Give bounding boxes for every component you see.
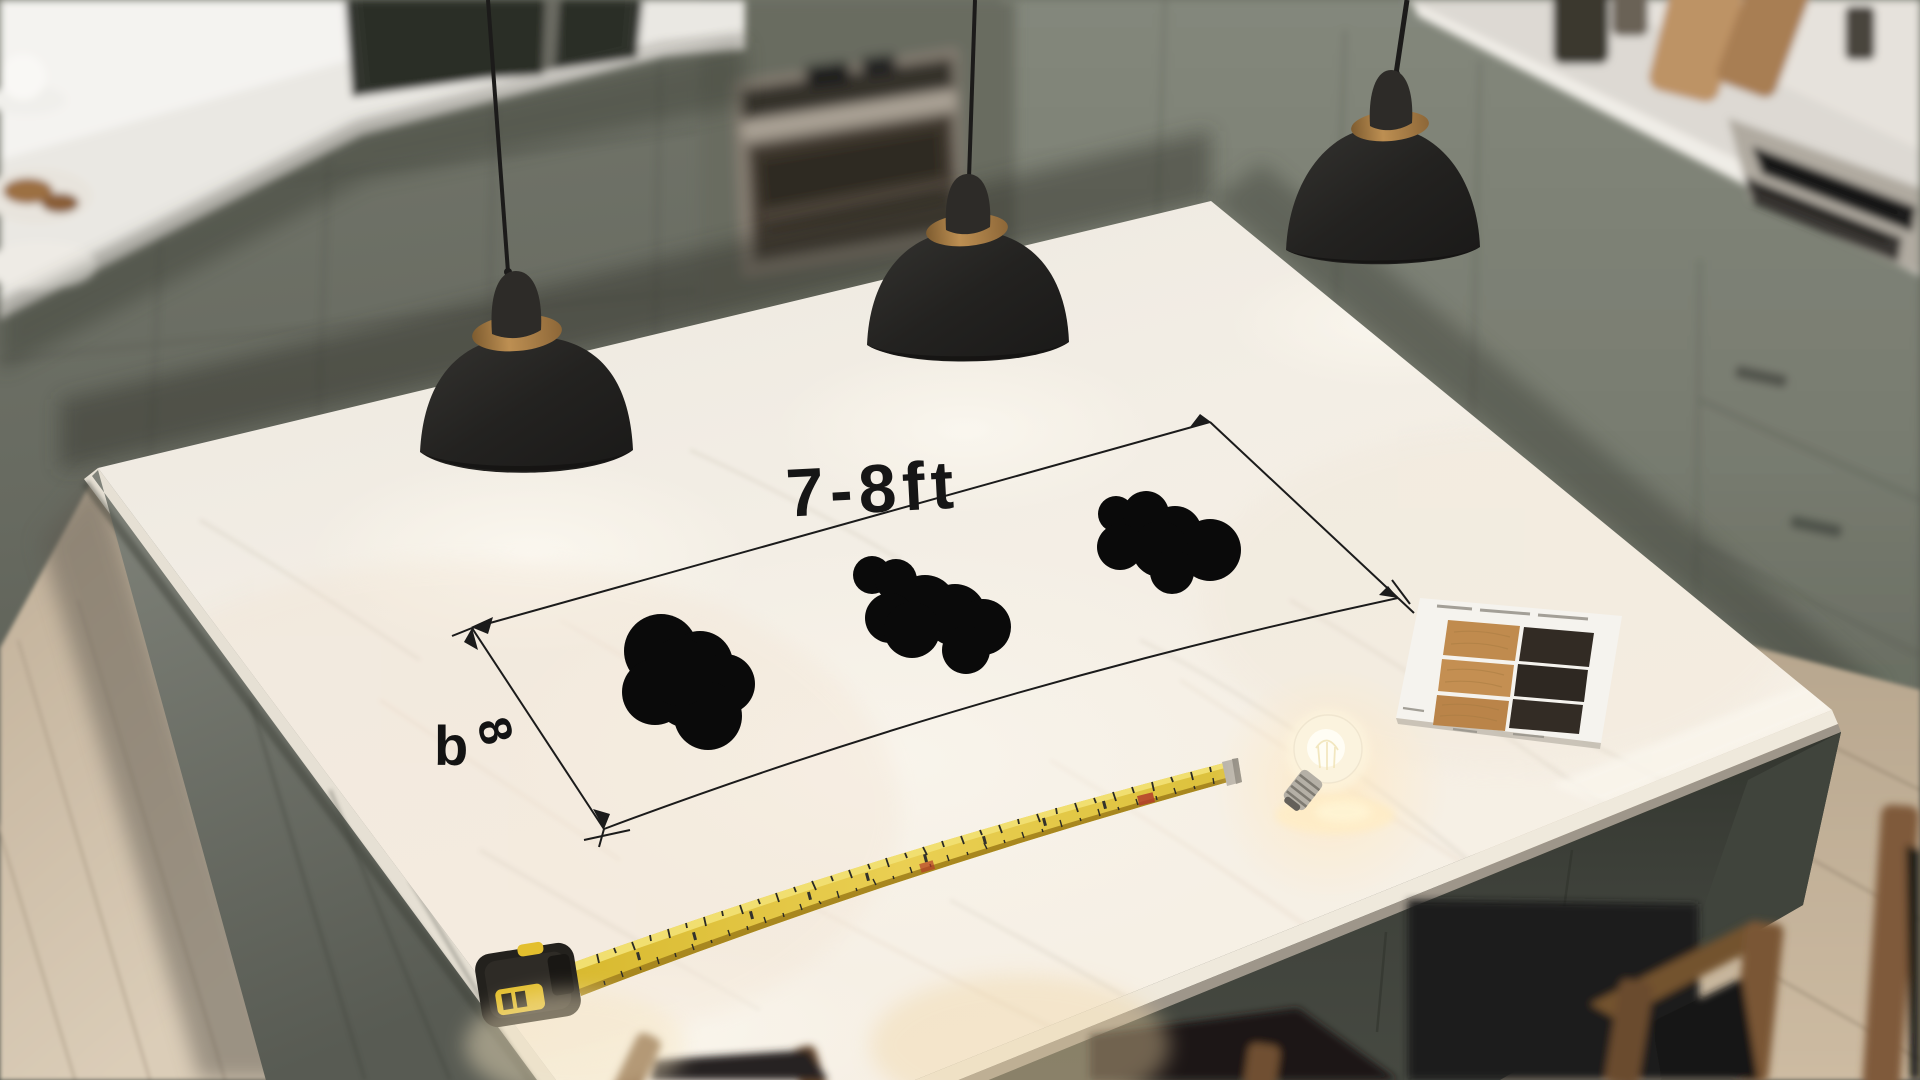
svg-text:7-8ft: 7-8ft [784, 447, 961, 532]
svg-text:b: b [434, 714, 468, 777]
